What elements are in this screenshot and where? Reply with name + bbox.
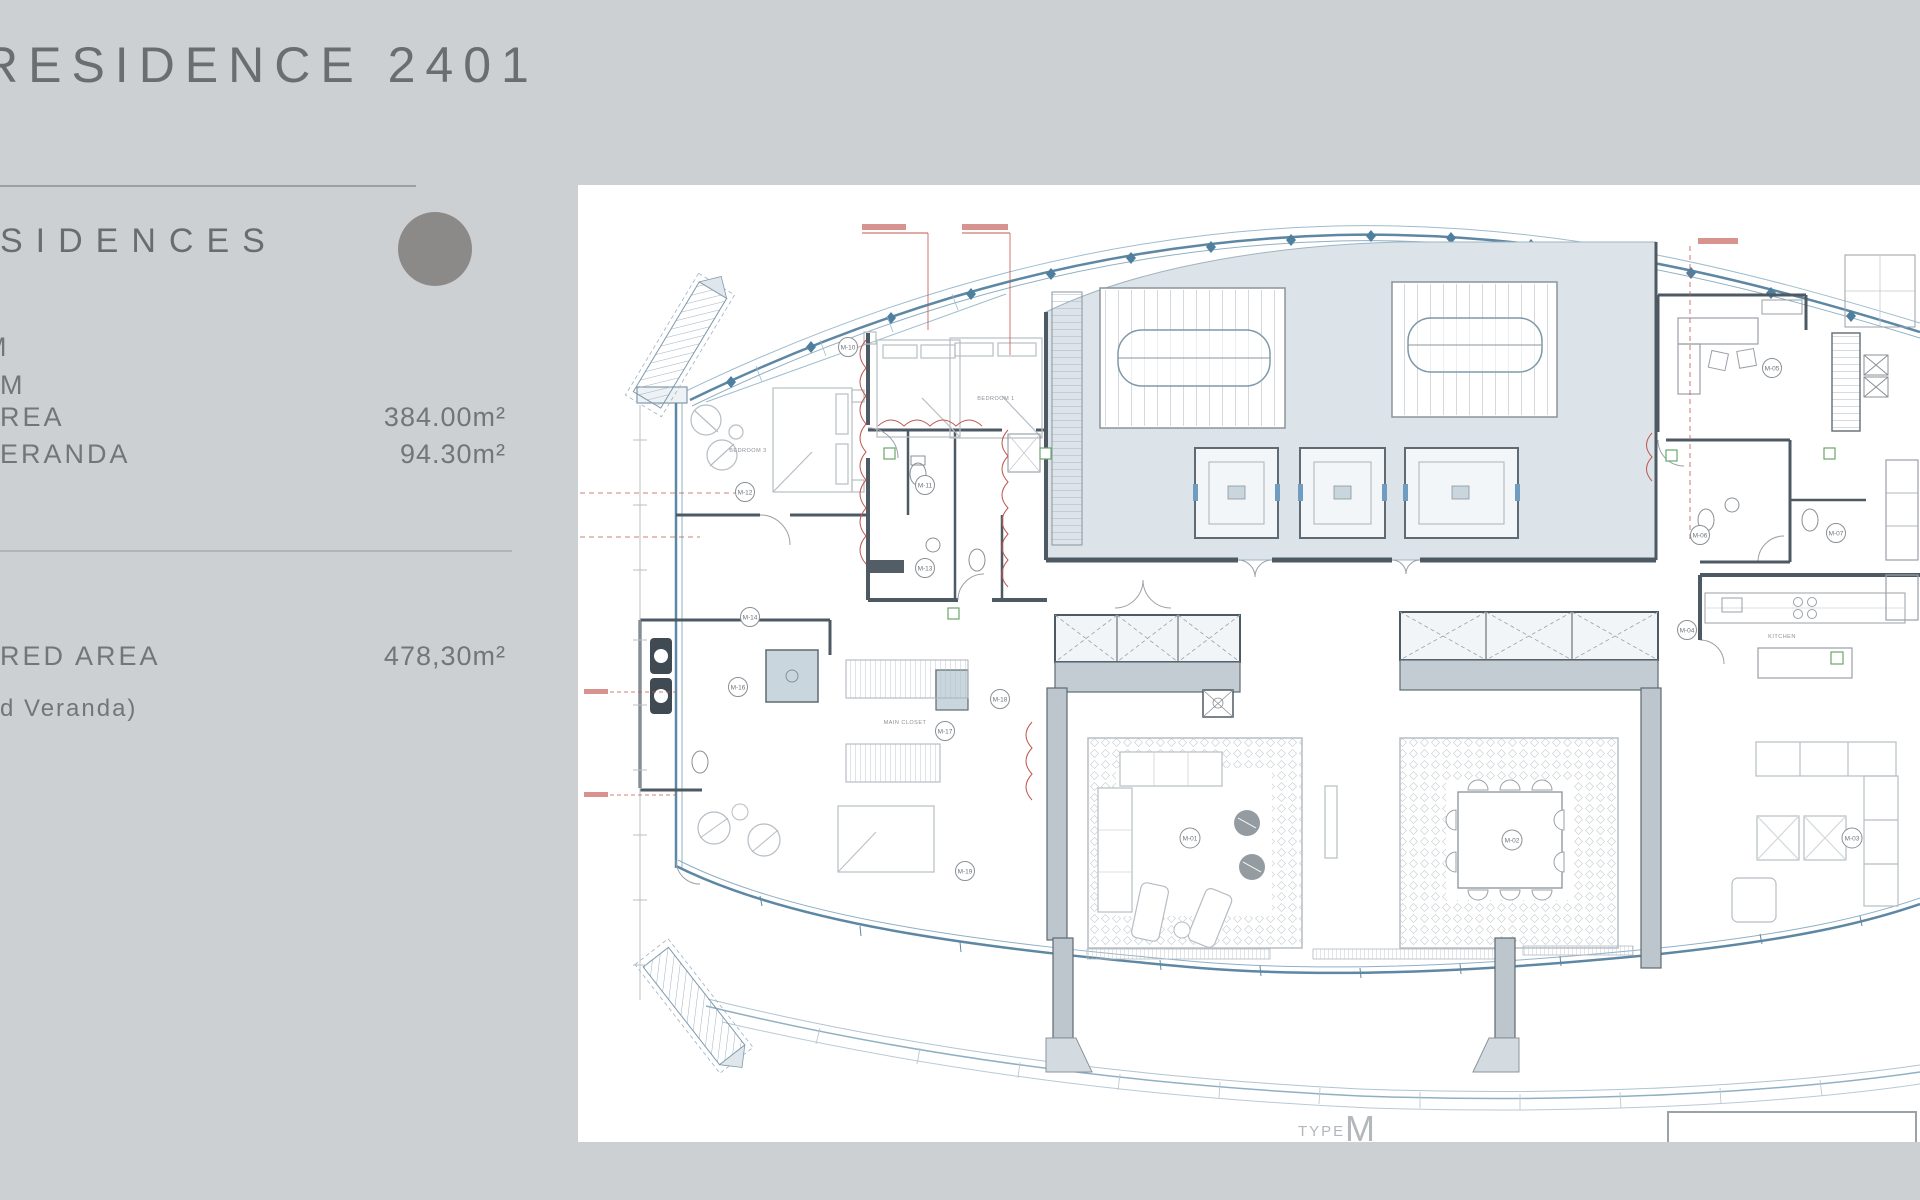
info-panel: RESIDENCE 2401 SIDENCES M M REA 384.00m²… [0,0,578,1200]
svg-text:M-12: M-12 [738,490,753,497]
type-label: TYPE M [1298,1108,1375,1142]
divider-top [0,185,416,187]
svg-text:M-03: M-03 [1845,836,1860,843]
room-label-bedroom1: BEDROOM 1 [977,396,1015,402]
service-ladder-right [1832,333,1860,431]
spec-value-area: 384.00m² [300,402,506,433]
brand-dot [398,212,472,286]
svg-text:M-02: M-02 [1505,838,1520,845]
page: RESIDENCE 2401 SIDENCES M M REA 384.00m²… [0,0,1920,1200]
divider-middle [0,550,512,552]
svg-text:M-14: M-14 [743,615,758,622]
elevator-rooms [1193,448,1520,538]
family-room [1732,742,1898,922]
spec-label-area: REA [0,402,65,433]
core-block [1046,242,1656,560]
type-label-letter: M [1345,1108,1375,1142]
spec-value-veranda: 94.30m² [300,439,506,470]
service-ladder-left [1052,292,1082,545]
svg-text:M-19: M-19 [958,869,973,876]
spec-value-covered: 478,30m² [300,641,506,672]
svg-text:M-16: M-16 [731,685,746,692]
svg-text:M-06: M-06 [1693,533,1708,540]
spec-label-covered: RED AREA [0,641,161,672]
bathrooms-left [650,434,1051,872]
svg-text:M-11: M-11 [918,483,933,490]
spec-note-fragment: d Veranda) [0,695,137,723]
svg-text:M-07: M-07 [1829,531,1844,538]
study [1658,295,1888,562]
title-block-box [1668,1112,1916,1142]
page-title: RESIDENCE 2401 [0,36,539,94]
stairwell-1 [1100,288,1285,428]
type-label-prefix: TYPE [1298,1123,1345,1140]
corridor-wardrobes [1055,612,1658,717]
room-label-main-closet: MAIN CLOSET [884,720,927,726]
dimension-line [633,405,647,1000]
floorplan-drawing: BEDROOM 3 BEDROOM 1 MAIN CLOSET KITCHEN … [578,185,1920,1142]
room-label-kitchen: KITCHEN [1768,634,1796,640]
stairwell-2 [1392,282,1557,417]
spec-label-fragment: M [0,370,26,401]
floorplan-canvas: BEDROOM 3 BEDROOM 1 MAIN CLOSET KITCHEN … [578,185,1920,1142]
svg-text:M-01: M-01 [1183,836,1198,843]
dining-room [1325,738,1618,948]
section-heading: SIDENCES [0,222,278,261]
svg-text:M-10: M-10 [841,345,856,352]
svg-text:M-17: M-17 [938,729,953,736]
spec-label-fragment: M [0,332,22,363]
room-label-bedroom3: BEDROOM 3 [729,448,767,454]
svg-text:M-05: M-05 [1765,366,1780,373]
spec-label-veranda: ERANDA [0,439,131,470]
svg-text:M-18: M-18 [993,697,1008,704]
svg-text:M-04: M-04 [1680,628,1695,635]
svg-text:M-13: M-13 [918,566,933,573]
pier-bottom-left [635,939,759,1081]
